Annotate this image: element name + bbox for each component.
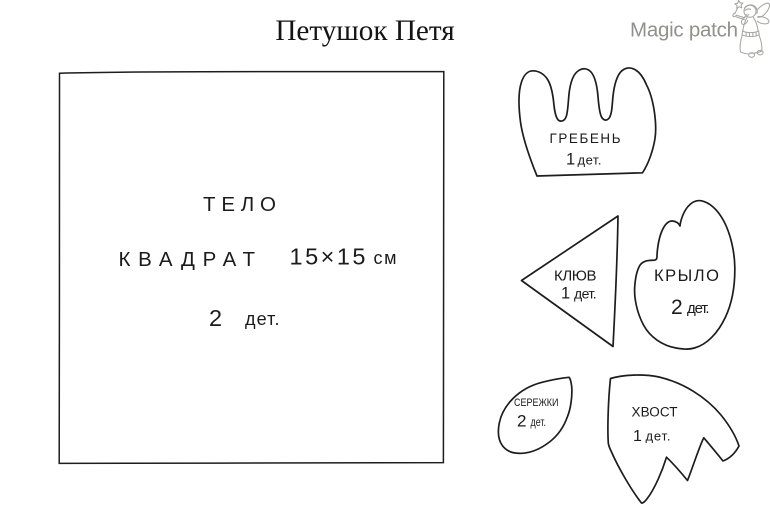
svg-text:ХВОСТ: ХВОСТ [632,405,678,420]
svg-text:1: 1 [633,428,642,445]
svg-text:дет.: дет. [687,300,710,317]
svg-text:КЛЮВ: КЛЮВ [554,268,597,285]
svg-text:Magic patch: Magic patch [630,19,738,42]
svg-text:Петушок Петя: Петушок Петя [275,15,454,47]
svg-text:1: 1 [561,285,570,303]
svg-text:2: 2 [671,296,683,319]
svg-text:15×15: 15×15 [290,244,366,270]
svg-text:см: см [374,248,397,268]
svg-text:ГРЕБЕНЬ: ГРЕБЕНЬ [550,131,621,146]
svg-text:дет.: дет. [646,429,671,444]
svg-text:2: 2 [209,305,222,331]
svg-text:КРЫЛО: КРЫЛО [654,267,719,285]
svg-text:дет.: дет. [578,153,602,168]
svg-text:1: 1 [566,151,575,169]
svg-text:2: 2 [517,412,526,431]
svg-text:дет.: дет. [245,309,280,329]
svg-text:КВАДРАТ: КВАДРАТ [119,248,256,271]
svg-text:дет.: дет. [574,286,597,302]
svg-text:СЕРЕЖКИ: СЕРЕЖКИ [514,397,559,409]
svg-text:дет.: дет. [531,417,547,429]
svg-text:ТЕЛО: ТЕЛО [203,193,276,216]
